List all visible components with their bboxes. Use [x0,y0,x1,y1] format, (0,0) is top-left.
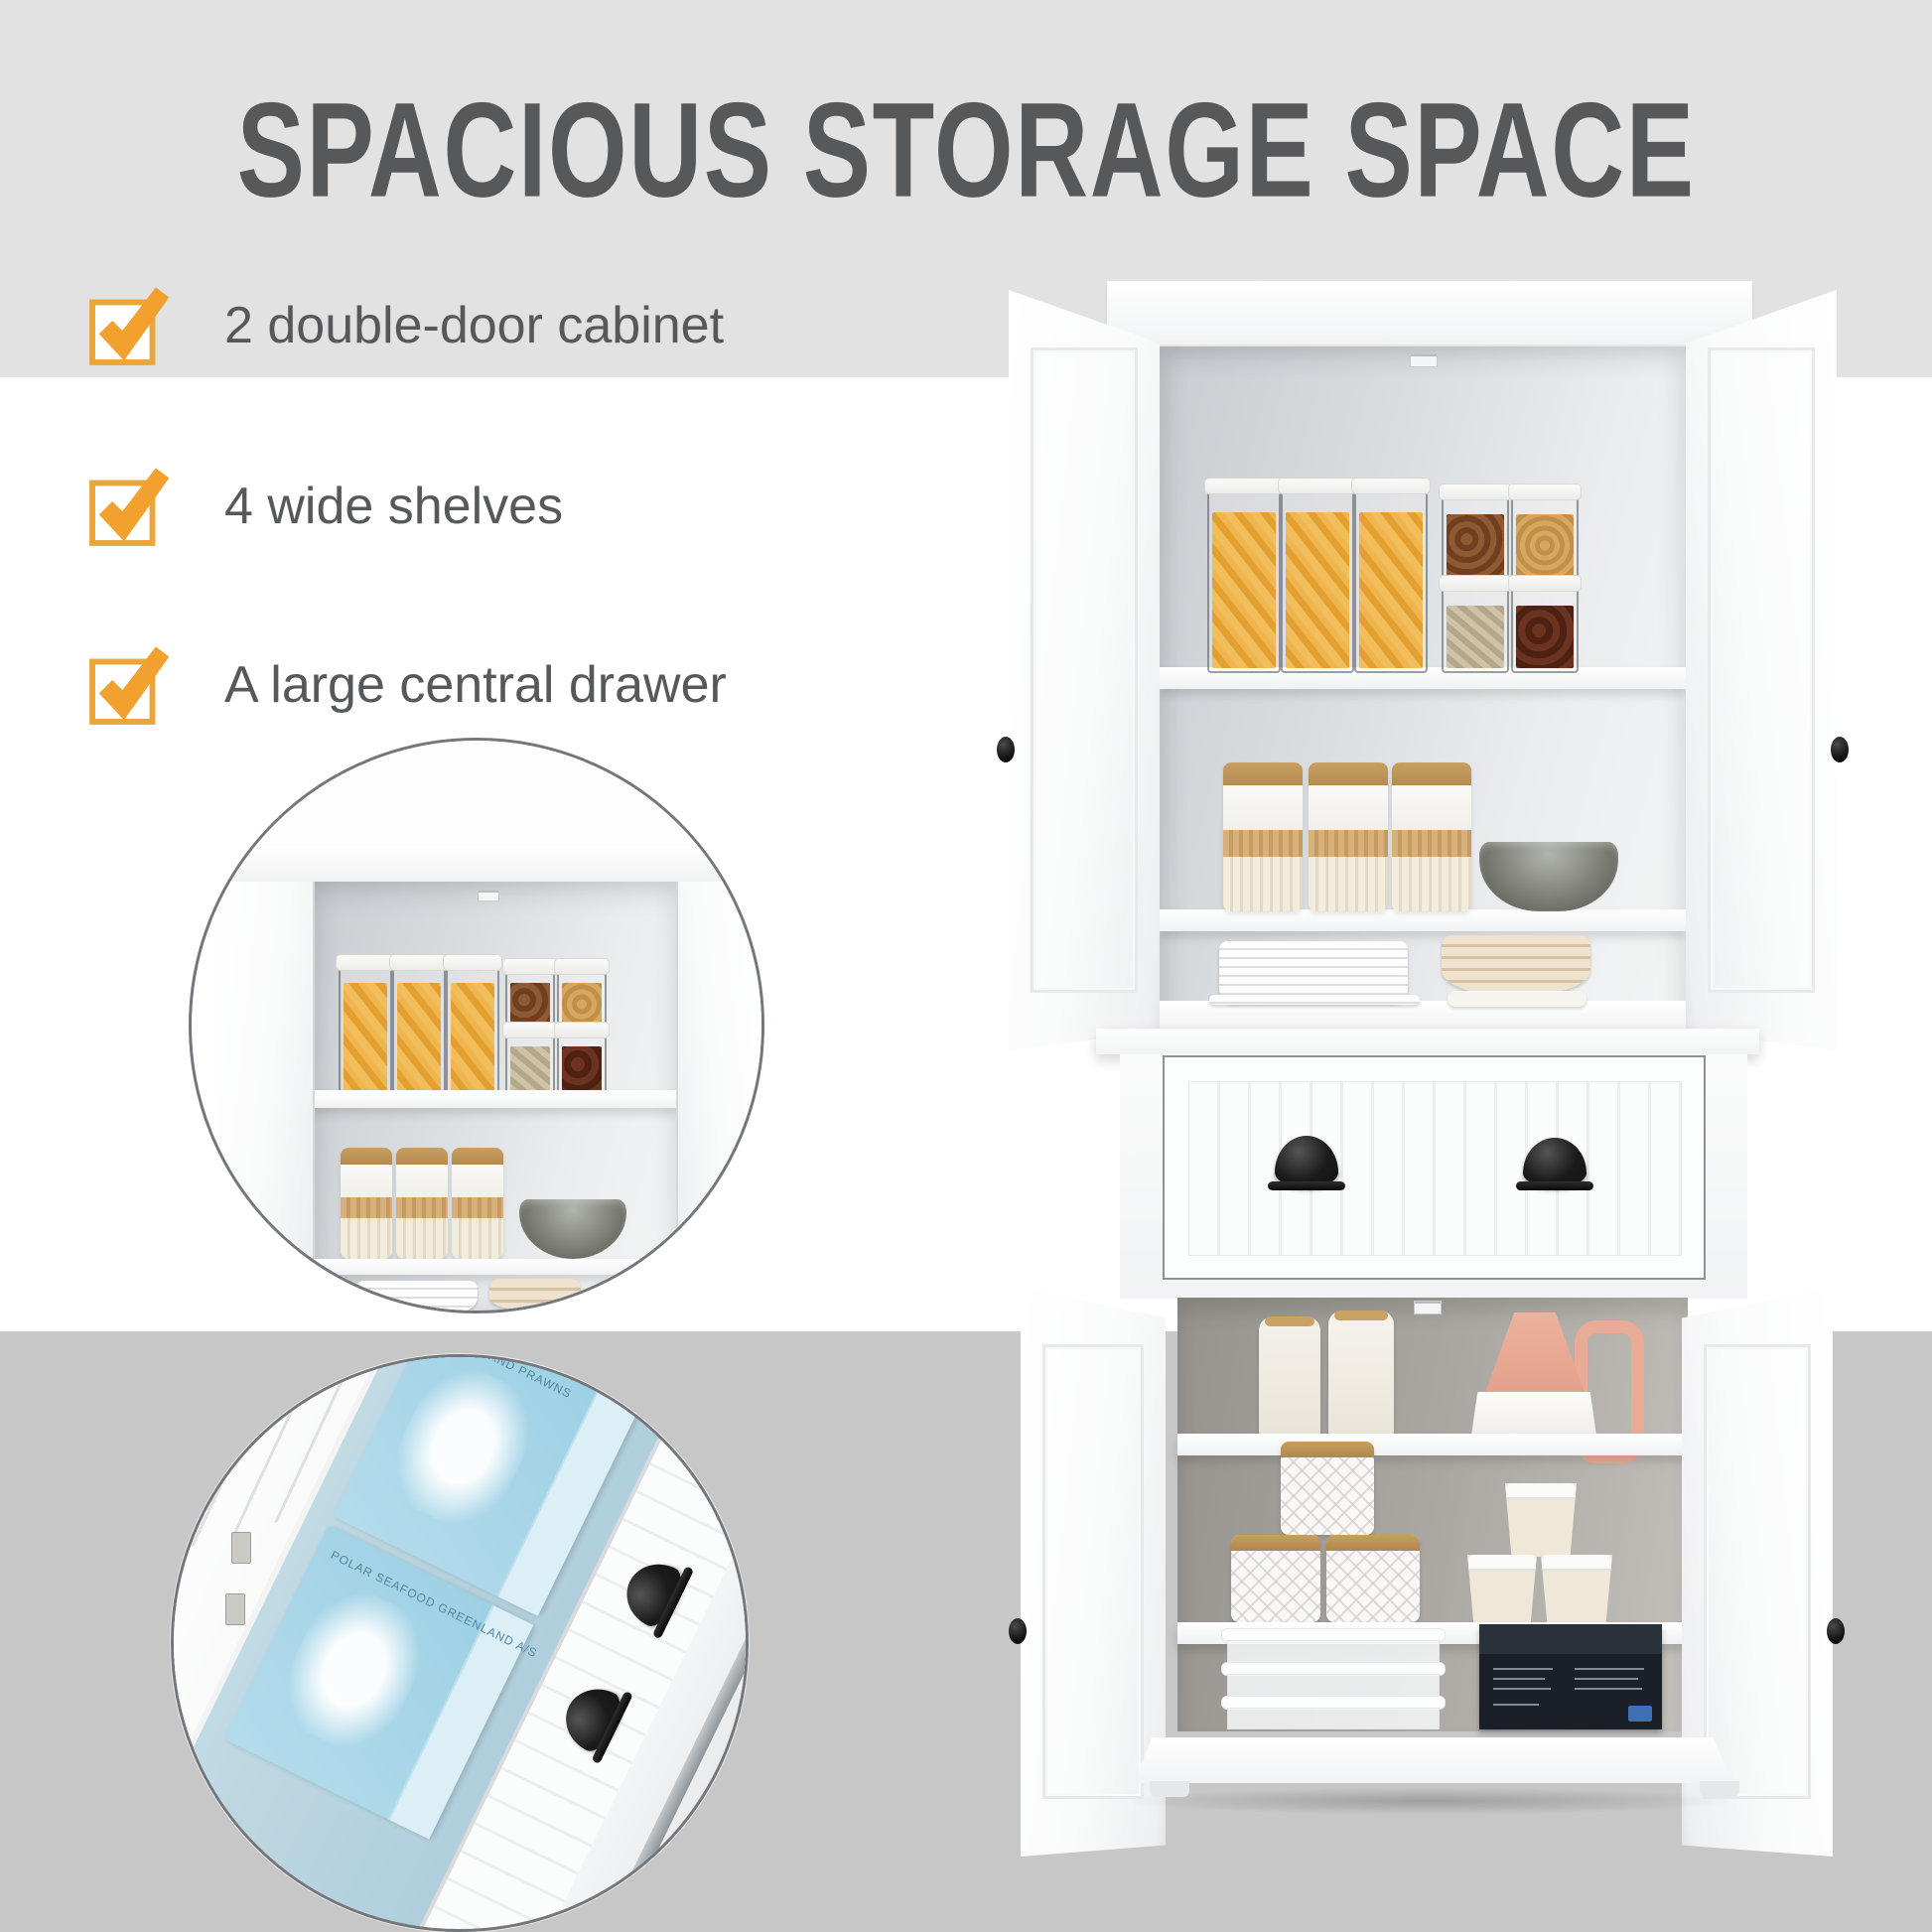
pasta-jar [1354,488,1428,673]
food-container [1227,1708,1440,1729]
inset-drawer-photo: POLAR SEAFOOD GREENLAND A/S GREENLAND PR… [171,1354,749,1932]
black-retail-box [1479,1624,1662,1729]
pasta-jar [339,965,392,1096]
top-left-door [1009,290,1160,1050]
door-latch [1414,1301,1442,1314]
chickpea-jar [1511,494,1579,582]
cream-tub [1467,1555,1537,1624]
pasta-jar [446,965,499,1096]
food-container [1227,1640,1440,1664]
door-panel [1704,1344,1811,1799]
inset-right-door [676,882,763,1311]
bowl-stack [1442,935,1590,995]
drawer-beadboard [1188,1081,1682,1256]
rattan-canister [1309,762,1388,911]
rattan-canister [341,1148,392,1259]
door-panel [1031,347,1138,993]
shelf [1177,1434,1688,1455]
textured-canister [1326,1535,1420,1622]
cream-canister [1259,1316,1320,1436]
white-bowl [1448,991,1587,1007]
polar-bear-illustration [267,1576,441,1764]
crown-molding [1107,281,1752,346]
cabinet-floor [1160,1001,1686,1031]
walnut-jar [1442,494,1509,582]
door-knob [1827,1618,1845,1644]
cream-tub [1541,1555,1612,1624]
food-container [1227,1674,1440,1698]
rattan-canister [1392,762,1471,911]
countertop [1096,1029,1759,1054]
door-panel [1708,347,1815,993]
ground-shadow [1122,1787,1737,1815]
bowl-stack [489,1279,581,1311]
drawer-front [1163,1055,1706,1280]
inset-left-door [211,882,315,1311]
crown-molding [192,846,761,884]
base-plinth [1134,1737,1731,1783]
dates-jar [557,1033,607,1096]
door-latch [478,890,499,901]
door-knob [997,737,1015,762]
box-logo [1628,1706,1652,1722]
cream-tub [1505,1483,1577,1557]
rattan-canister [396,1148,448,1259]
shelf [1160,909,1686,931]
textured-canister [1281,1442,1374,1535]
door-panel [1042,1344,1144,1799]
plate-stack [1219,941,1408,1003]
cereal-jar [505,1033,555,1096]
plate-stack [356,1281,478,1311]
dates-jar [1511,586,1579,673]
pasta-jar [392,965,446,1096]
rattan-canister [452,1148,503,1259]
pasta-jar [1207,488,1281,673]
pasta-jar [1281,488,1354,673]
cabinet-foot [1150,1781,1189,1797]
door-knob [1831,737,1849,762]
carafe-body [1471,1392,1596,1436]
top-right-door [1686,290,1837,1050]
cream-canister [1328,1311,1394,1436]
textured-canister [1231,1535,1320,1622]
polar-bear-illustration [376,1354,550,1542]
plate-base [1209,995,1420,1005]
door-knob [1009,1618,1027,1644]
shelf [311,1259,678,1275]
rattan-canister [1223,762,1303,911]
cereal-jar [1442,586,1509,673]
inset-shelves-photo [189,738,764,1313]
cabinet-foot [1700,1781,1739,1797]
door-latch [1410,353,1438,367]
shelf [311,1090,678,1108]
